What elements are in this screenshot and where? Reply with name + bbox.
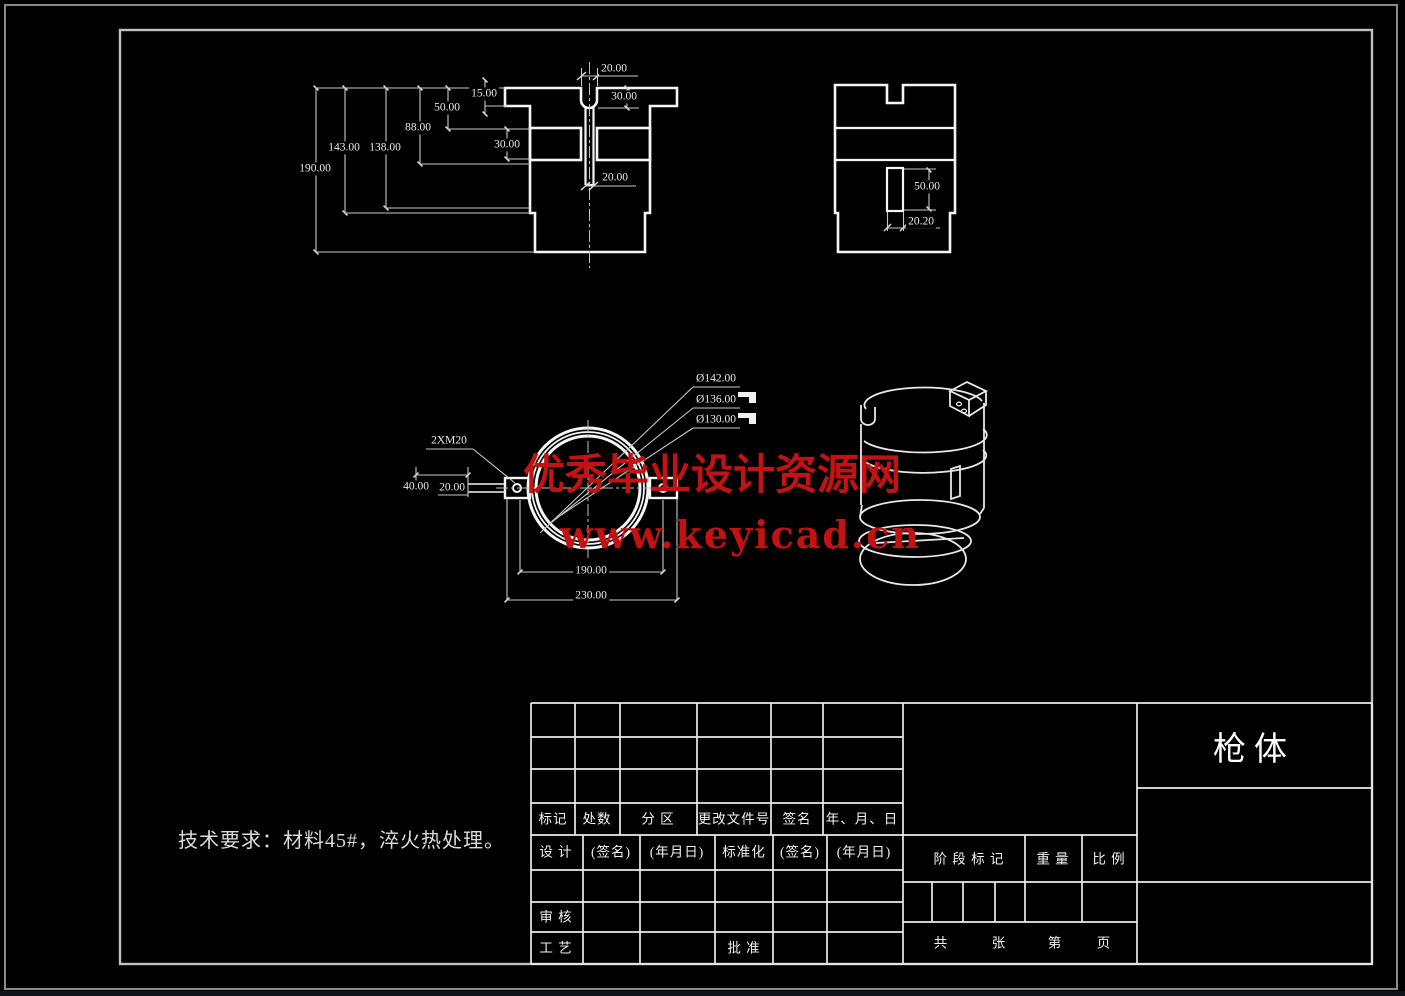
tb-scale-label: 比 例 bbox=[1092, 852, 1125, 866]
dim-slot-20: 20.00 bbox=[600, 171, 630, 184]
part-name-label: 枪体 bbox=[1213, 722, 1295, 770]
tb-sign-label: 签名 bbox=[783, 812, 812, 826]
dim-side-50: 50.00 bbox=[912, 180, 942, 193]
dim-udepth-30: 30.00 bbox=[609, 90, 639, 103]
tb-date-label: 年、月、日 bbox=[826, 812, 899, 826]
section-marker-blocks bbox=[738, 392, 756, 424]
tb-zone-label: 分 区 bbox=[641, 812, 674, 826]
dim-thread-2xm20: 2XM20 bbox=[429, 434, 469, 447]
tb-standard-sign-label: (签名) bbox=[780, 845, 820, 859]
tb-approve-label: 批 准 bbox=[727, 941, 760, 955]
dim-width-190: 190.00 bbox=[573, 564, 609, 577]
dim-dia-130: Ø130.00 bbox=[694, 413, 738, 426]
tb-standard-date-label: (年月日) bbox=[837, 845, 892, 859]
dim-width-40: 40.00 bbox=[401, 480, 431, 493]
tb-docno-label: 更改文件号 bbox=[698, 812, 771, 826]
tb-stage-mark-label: 阶 段 标 记 bbox=[933, 852, 1004, 866]
dim-height-143: 143.00 bbox=[326, 141, 362, 154]
tb-count-label: 处数 bbox=[583, 812, 612, 826]
dim-dia-136: Ø136.00 bbox=[694, 393, 738, 406]
tb-pages-no-label: 第 bbox=[1048, 936, 1063, 950]
dim-side-2020: 20.20 bbox=[906, 215, 936, 228]
dim-height-190: 190.00 bbox=[297, 162, 333, 175]
tb-standard-label: 标准化 bbox=[722, 845, 766, 859]
screenshot-bottom-edge bbox=[0, 991, 1405, 996]
tb-design-date-label: (年月日) bbox=[650, 845, 705, 859]
dim-slot-top-20: 20.00 bbox=[599, 62, 629, 75]
cad-drawing-sheet: 190.00 143.00 138.00 88.00 50.00 15.00 2… bbox=[0, 0, 1405, 996]
dim-height-88: 88.00 bbox=[403, 121, 433, 134]
dim-width-20: 20.00 bbox=[437, 481, 467, 494]
tb-audit-label: 审 核 bbox=[539, 910, 572, 924]
dim-dia-142: Ø142.00 bbox=[694, 372, 738, 385]
tb-mark-label: 标记 bbox=[539, 812, 568, 826]
dim-width-230: 230.00 bbox=[573, 589, 609, 602]
side-view bbox=[835, 85, 955, 252]
dim-groove-30: 30.00 bbox=[492, 138, 522, 151]
dim-height-15: 15.00 bbox=[469, 87, 499, 100]
tb-weight-label: 重 量 bbox=[1036, 852, 1069, 866]
watermark-site-url: www.keyicad.cn bbox=[560, 512, 921, 557]
tb-pages-page-label: 页 bbox=[1097, 936, 1112, 950]
tb-pages-sheet-label: 张 bbox=[992, 936, 1007, 950]
watermark-site-name: 优秀毕业设计资源网 bbox=[523, 441, 901, 502]
tb-pages-total-label: 共 bbox=[934, 936, 949, 950]
dim-height-50: 50.00 bbox=[432, 101, 462, 114]
tb-design-label: 设 计 bbox=[539, 845, 572, 859]
technical-requirements-note: 技术要求：材料45#，淬火热处理。 bbox=[178, 824, 505, 853]
dim-height-138: 138.00 bbox=[367, 141, 403, 154]
tb-design-sign-label: (签名) bbox=[591, 845, 631, 859]
front-view bbox=[505, 88, 677, 252]
tb-craft-label: 工 艺 bbox=[539, 941, 572, 955]
